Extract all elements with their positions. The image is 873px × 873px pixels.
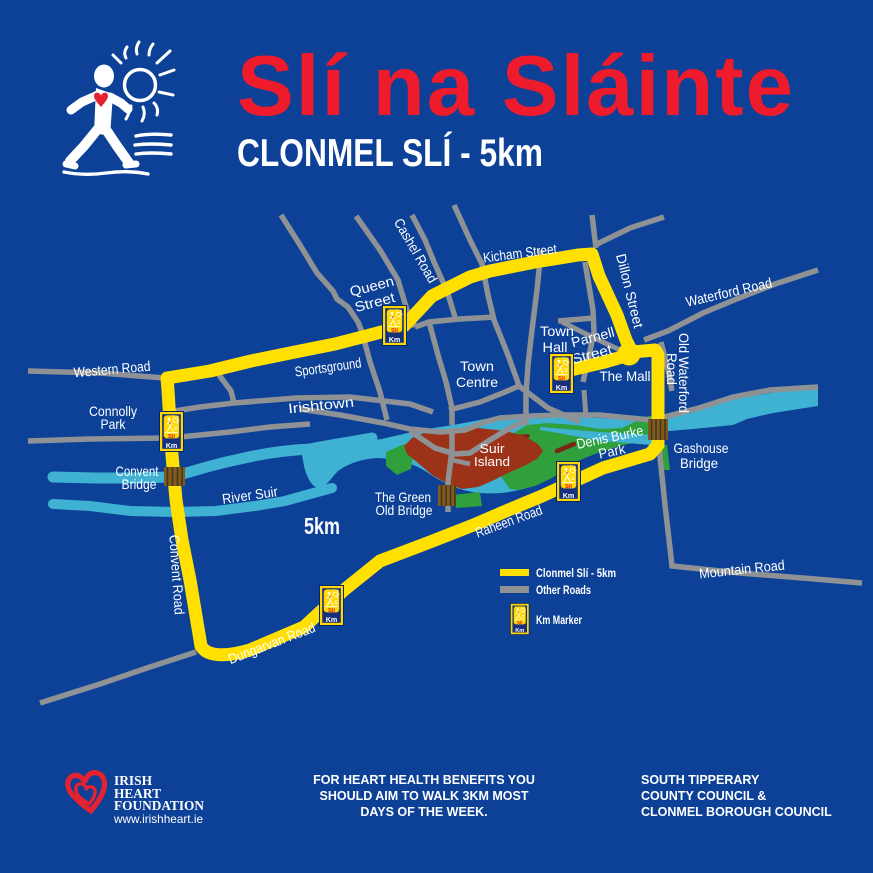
svg-text:SHOULD AIM TO WALK 3KM MOST: SHOULD AIM TO WALK 3KM MOST <box>319 789 528 803</box>
svg-text:Bridge: Bridge <box>680 455 718 471</box>
svg-text:Road: Road <box>664 353 680 385</box>
svg-text:Clonmel Slí - 5km: Clonmel Slí - 5km <box>536 566 616 580</box>
svg-text:www.irishheart.ie: www.irishheart.ie <box>113 812 203 826</box>
svg-text:5km: 5km <box>304 513 340 539</box>
svg-text:Island: Island <box>474 454 510 469</box>
svg-text:Park: Park <box>101 416 127 432</box>
svg-text:DAYS OF THE WEEK.: DAYS OF THE WEEK. <box>360 805 487 819</box>
svg-text:FOUNDATION: FOUNDATION <box>114 798 204 813</box>
svg-text:The Mall: The Mall <box>600 368 651 384</box>
svg-text:CLONMEL SLÍ - 5km: CLONMEL SLÍ - 5km <box>237 131 543 175</box>
svg-text:Slí na Sláinte: Slí na Sláinte <box>237 39 795 134</box>
svg-text:Town: Town <box>460 358 494 374</box>
svg-text:Km Marker: Km Marker <box>536 613 582 627</box>
svg-text:Gashouse: Gashouse <box>674 440 729 456</box>
svg-text:SOUTH TIPPERARY: SOUTH TIPPERARY <box>641 773 760 787</box>
svg-text:Hall: Hall <box>543 339 568 355</box>
svg-text:COUNTY COUNCIL &: COUNTY COUNCIL & <box>641 789 766 803</box>
svg-text:Centre: Centre <box>456 374 498 390</box>
svg-text:Bridge: Bridge <box>122 476 157 492</box>
svg-text:Old Bridge: Old Bridge <box>376 502 433 518</box>
svg-text:Other Roads: Other Roads <box>536 583 591 597</box>
svg-text:FOR HEART HEALTH BENEFITS YOU: FOR HEART HEALTH BENEFITS YOU <box>313 773 535 787</box>
svg-text:CLONMEL BOROUGH COUNCIL: CLONMEL BOROUGH COUNCIL <box>641 805 832 819</box>
